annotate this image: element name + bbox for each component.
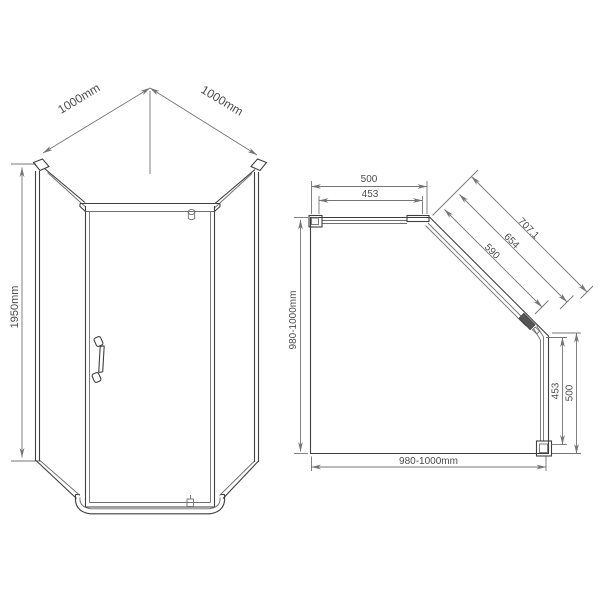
dim-label-top-inner: 453: [362, 189, 379, 200]
dim-label-diagonal-middle: 654: [501, 231, 521, 251]
plan-view: 500 453 590 654 707.1 980-1000mm: [288, 170, 593, 471]
dim-label-width-left: 1000mm: [55, 80, 102, 116]
front-width-dimension: 1000mm 1000mm: [43, 80, 257, 174]
right-wall-glass: [534, 326, 544, 442]
door-pivot-bracket: [407, 216, 429, 222]
plan-outline: [311, 218, 549, 454]
door-frame: [80, 204, 220, 508]
corner-post-right: [251, 159, 267, 462]
dim-label-top-outer: 500: [361, 174, 378, 185]
side-panel-left: [45, 169, 86, 207]
plan-right-dimensions: 453 500: [546, 333, 581, 454]
dim-label-diagonal-inner: 590: [482, 242, 502, 262]
technical-drawing: 1000mm 1000mm 1950mm: [0, 0, 600, 600]
handle-top-mount: [93, 336, 103, 347]
plan-left-dimension: 980-1000mm: [288, 218, 308, 454]
dim-label-width-right: 1000mm: [198, 82, 245, 118]
side-panel-right: [215, 170, 255, 208]
dim-label-right-inner: 453: [551, 382, 562, 399]
post-cap-right: [251, 159, 267, 171]
dim-label-bottom-width: 980-1000mm: [399, 456, 458, 467]
front-view: 1000mm 1000mm 1950mm: [9, 80, 267, 513]
door-bottom-guide: [187, 495, 194, 507]
dim-label-right-outer: 500: [565, 384, 576, 401]
front-height-dimension: 1950mm: [9, 164, 41, 461]
side-panel-bottom-edges: [36, 461, 258, 499]
plan-bottom-dimension: 980-1000mm: [312, 456, 547, 471]
dim-label-left-depth: 980-1000mm: [288, 291, 299, 350]
door-top-pivot: [188, 209, 194, 219]
handle-bottom-mount: [91, 372, 101, 383]
post-cap-left: [34, 159, 50, 171]
door-handle: [91, 336, 104, 383]
top-wall-glass: [322, 221, 407, 224]
drawing-canvas: 1000mm 1000mm 1950mm: [0, 0, 600, 600]
corner-post-left: [34, 159, 50, 461]
shower-tray: [76, 495, 225, 514]
plan-top-dimensions: 500 453: [312, 174, 428, 214]
dim-label-height: 1950mm: [9, 286, 21, 329]
plan-diagonal-dimensions: 590 654 707.1: [433, 170, 594, 314]
dim-label-diagonal-outer: 707.1: [516, 216, 542, 242]
